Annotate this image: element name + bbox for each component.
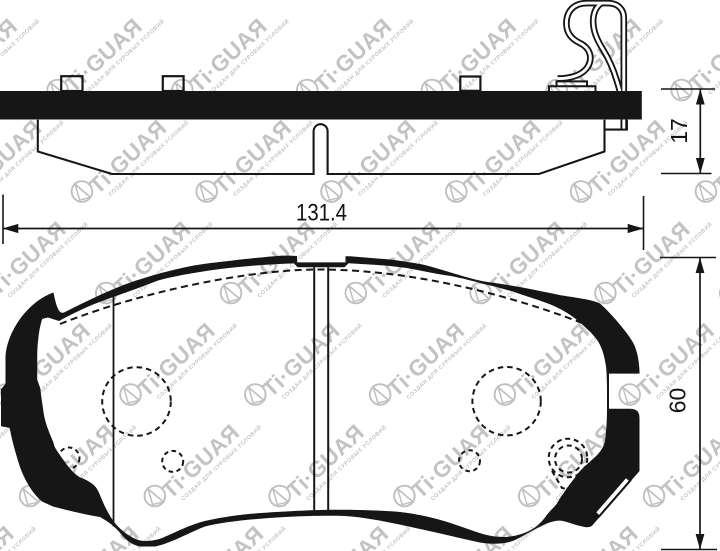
svg-text:17: 17: [666, 118, 692, 144]
svg-text:60: 60: [665, 388, 691, 414]
svg-text:131.4: 131.4: [296, 199, 347, 226]
